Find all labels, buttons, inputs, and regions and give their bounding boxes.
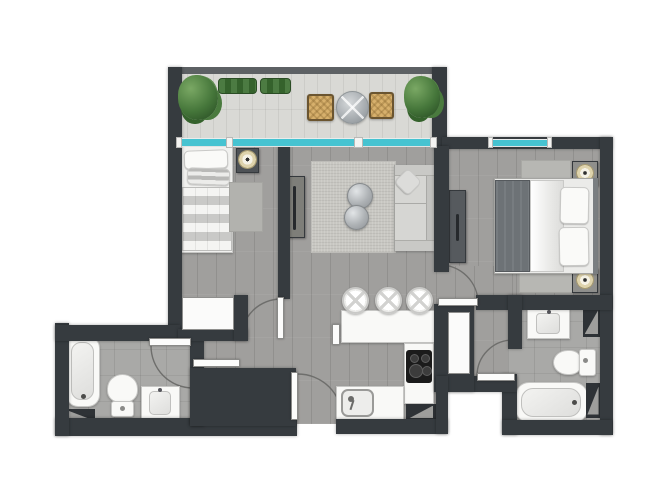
coffee-table-2 xyxy=(344,205,369,230)
hedge-planter-1 xyxy=(218,78,257,94)
wall-right-exterior xyxy=(600,137,613,435)
bath2-service-shaft-top xyxy=(583,307,600,337)
balcony-glazing xyxy=(178,138,436,147)
bedroom-1-door xyxy=(277,297,284,339)
cooktop xyxy=(406,350,432,383)
bed1-lamp xyxy=(238,150,257,169)
laundry-niche-block xyxy=(190,368,296,426)
hedge-planter-2 xyxy=(260,78,291,94)
bed1-pillow-striped xyxy=(187,167,231,185)
bathtub-1-basin xyxy=(71,342,94,400)
breakfast-bar-counter xyxy=(341,310,435,343)
sofa-cushion-seam xyxy=(395,203,427,204)
wall-bath2-left-upper xyxy=(508,295,522,349)
bar-stool-2 xyxy=(375,287,402,314)
bed2-wardrobe-handle xyxy=(456,214,459,241)
wicker-chair-right xyxy=(369,92,394,119)
bed2-throw-blanket xyxy=(495,180,530,272)
bathtub-2-drain xyxy=(572,400,577,405)
bistro-table xyxy=(336,91,369,124)
bath2-service-shaft-bottom xyxy=(586,383,600,418)
bathroom-2-door xyxy=(477,373,515,381)
bed2-window-mullion-2 xyxy=(547,137,552,148)
hall-closet xyxy=(448,312,470,374)
toilet-1-flush-button xyxy=(120,406,125,411)
bed2-window-mullion-1 xyxy=(488,137,493,148)
laundry-door xyxy=(193,359,240,367)
kitchen-sink xyxy=(341,389,374,417)
toilet-2-tank xyxy=(579,349,596,376)
bed2-headboard xyxy=(593,178,598,274)
sofa-backrest xyxy=(426,166,434,250)
vanity-2-faucet xyxy=(547,310,551,314)
wall-bedroom1-living xyxy=(278,146,290,299)
bar-stool-3 xyxy=(406,287,433,314)
wall-living-bedroom2 xyxy=(434,146,449,272)
bathtub-1-drain xyxy=(81,394,86,399)
toilet-2-bowl xyxy=(553,350,582,375)
bed2-pillow-bottom xyxy=(559,227,590,267)
bar-stool-1 xyxy=(342,287,369,314)
glazing-mullion-2 xyxy=(226,137,233,148)
entrance-door xyxy=(291,372,298,420)
bed2-pillow-top xyxy=(560,187,590,225)
bed1-rug xyxy=(229,182,263,232)
glazing-mullion-1 xyxy=(176,137,182,148)
bed1-closet xyxy=(182,297,234,330)
bedroom-2-door xyxy=(438,298,478,306)
bedroom2-window xyxy=(491,139,549,147)
glazing-mullion-4 xyxy=(430,137,437,148)
balcony-railing-wall xyxy=(170,67,442,74)
wall-kitchen-corner xyxy=(436,376,448,434)
wall-kitchen-bottom xyxy=(336,419,448,434)
sideboard-handle xyxy=(293,186,296,230)
counter-end-panel xyxy=(332,324,340,345)
wall-bedroom2-bottom xyxy=(476,295,612,310)
glazing-mullion-3 xyxy=(354,137,363,148)
vanity-1-faucet xyxy=(158,388,162,392)
kitchen-service-shaft xyxy=(406,404,436,420)
floor-plan xyxy=(0,0,665,498)
wall-bath2-bottom xyxy=(502,420,612,435)
bed1-closet-wall-right xyxy=(234,295,248,341)
toilet-2-flush-button xyxy=(583,358,588,363)
sofa-armrest-bottom xyxy=(395,240,434,251)
plant-top-right xyxy=(404,76,440,118)
bathroom-1-door xyxy=(149,338,191,346)
vanity-1-basin xyxy=(149,391,171,415)
vanity-2-basin xyxy=(536,313,560,334)
plant-top-left xyxy=(178,75,218,120)
bed1-duvet xyxy=(182,187,232,251)
wicker-chair-left xyxy=(307,94,334,121)
toilet-1-bowl xyxy=(107,374,138,403)
